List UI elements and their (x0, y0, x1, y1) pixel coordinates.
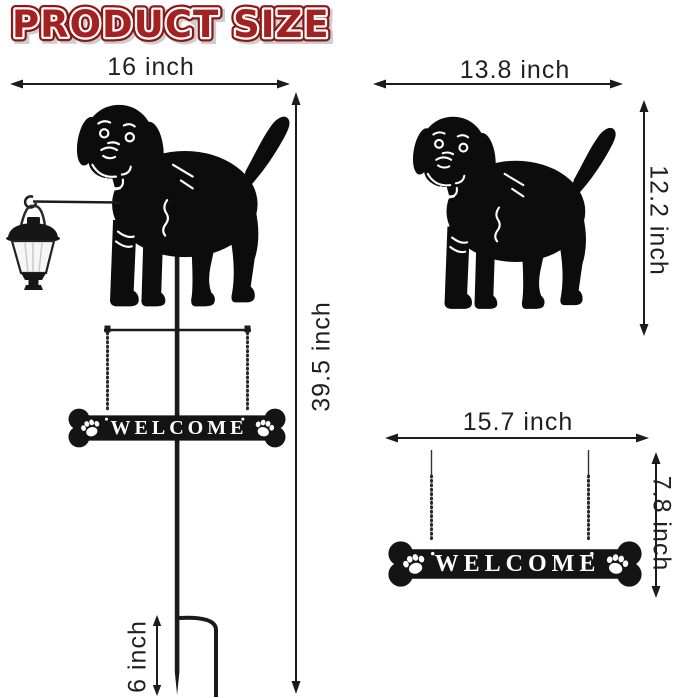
left-height-arrow (289, 90, 305, 696)
stake-fork-prong (179, 618, 216, 697)
welcome-sign-text-right: WELCOME (382, 538, 648, 590)
sign-height-label: 7.8 inch (647, 469, 676, 579)
stake-depth-label: 6 inch (124, 609, 153, 698)
welcome-sign-text-left: WELCOME (63, 405, 291, 451)
left-height-label: 39.5 inch (308, 292, 337, 422)
hanging-chains-left (100, 324, 255, 414)
lantern-icon (2, 195, 126, 295)
product-size-diagram: PRODUCT SIZE PRODUCT SIZE PRODUCT SIZE P… (0, 0, 679, 698)
sign-width-arrow (383, 431, 651, 445)
page-title: PRODUCT SIZE PRODUCT SIZE PRODUCT SIZE P… (6, 0, 336, 50)
svg-text:PRODUCT SIZE: PRODUCT SIZE (12, 3, 330, 46)
dog-width-arrow (371, 77, 625, 91)
left-width-arrow (8, 77, 292, 91)
dog-height-label: 12.2 inch (644, 156, 673, 286)
hanging-chains-right (425, 450, 595, 542)
dog-silhouette-right (394, 103, 619, 331)
